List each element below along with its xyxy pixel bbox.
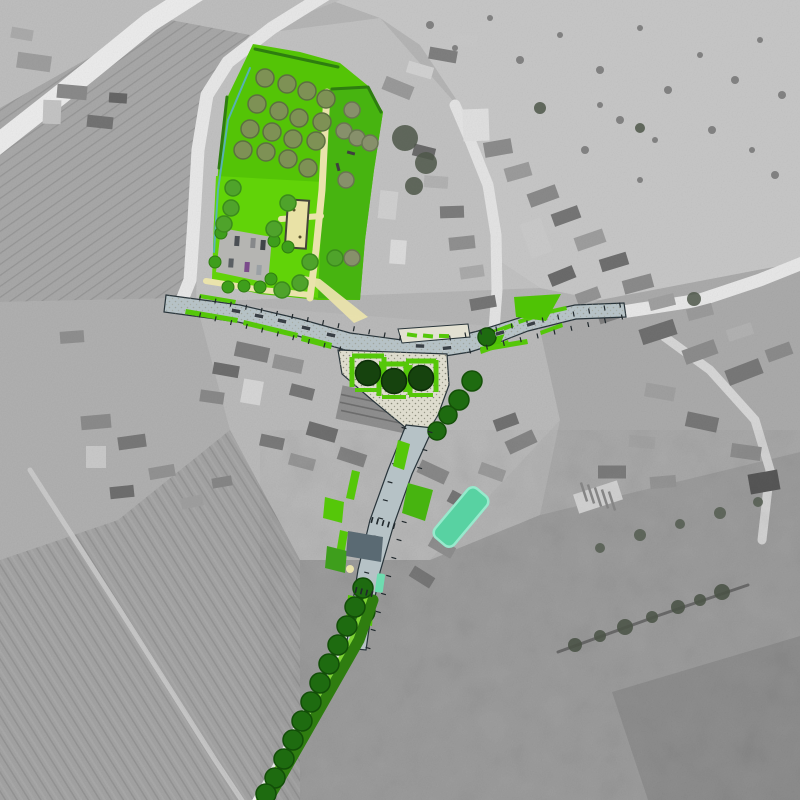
park-right-trees: [338, 172, 354, 188]
plaza-planters: [350, 357, 355, 387]
parking-bushes: [254, 281, 266, 293]
parked-cars: [256, 265, 262, 275]
park-lower-trees: [225, 180, 241, 196]
plaza-planters: [409, 393, 433, 397]
street-cars: [415, 344, 424, 348]
avenue-trees: [283, 730, 303, 750]
park-right-trees: [362, 135, 378, 151]
site-plan-canvas: [0, 0, 800, 800]
plaza-trees: [356, 361, 381, 386]
orchard-trees: [257, 143, 275, 161]
avenue-trees: [310, 673, 330, 693]
plaza-trees: [382, 369, 407, 394]
park-lower-trees: [280, 195, 296, 211]
orchard-trees: [263, 123, 281, 141]
parking-bushes: [265, 273, 277, 285]
parking-bushes: [209, 256, 221, 268]
avenue-trees: [345, 597, 365, 617]
parked-cars: [234, 236, 240, 246]
orchard-trees: [313, 113, 331, 131]
plaza-planters: [352, 354, 384, 359]
park-lower-trees: [223, 200, 239, 216]
parked-cars: [250, 238, 256, 248]
orchard-trees: [241, 120, 259, 138]
boules-court-marks: [299, 236, 302, 239]
site-plan-map: [0, 0, 800, 800]
street-cars: [442, 346, 451, 351]
park-lower-trees: [266, 221, 282, 237]
avenue-trees: [274, 749, 294, 769]
northeast-street-trees: [428, 422, 446, 440]
orchard-trees: [317, 90, 335, 108]
parked-cars: [228, 258, 234, 267]
orchard-trees: [299, 159, 317, 177]
park-lower-trees: [216, 216, 232, 232]
orchard-trees: [279, 150, 297, 168]
orchard-trees: [270, 102, 288, 120]
orchard-trees: [278, 75, 296, 93]
plaza-north-bed-dashes: [439, 334, 449, 338]
avenue-trees: [301, 692, 321, 712]
plaza-trees: [409, 366, 434, 391]
avenue-trees: [256, 784, 276, 800]
orchard-trees: [298, 82, 316, 100]
northeast-street-trees: [462, 371, 482, 391]
avenue-trees: [292, 711, 312, 731]
orchard-trees: [234, 141, 252, 159]
parking-bushes: [238, 280, 250, 292]
meadow-mottle-texture: [260, 430, 800, 800]
parking-bushes: [282, 241, 294, 253]
parked-cars: [244, 262, 250, 272]
orchard-trees: [248, 95, 266, 113]
park-right-trees: [344, 102, 360, 118]
northeast-street-trees: [439, 406, 457, 424]
orchard-trees: [290, 109, 308, 127]
park-lower-trees: [274, 282, 290, 298]
parking-bushes: [222, 281, 234, 293]
orchard-trees: [256, 69, 274, 87]
orchard-trees: [307, 132, 325, 150]
plaza-planters: [406, 359, 436, 364]
park-lower-trees: [327, 250, 343, 266]
plaza-planters: [434, 360, 439, 392]
park-right-trees: [344, 250, 360, 266]
park-lower-trees: [302, 254, 318, 270]
avenue-trees: [337, 616, 357, 636]
plaza-planters: [382, 395, 406, 399]
avenue-trees: [319, 654, 339, 674]
parked-cars: [260, 240, 266, 250]
avenue-trees: [328, 635, 348, 655]
orchard-trees: [284, 130, 302, 148]
beige-dot: [346, 565, 354, 573]
